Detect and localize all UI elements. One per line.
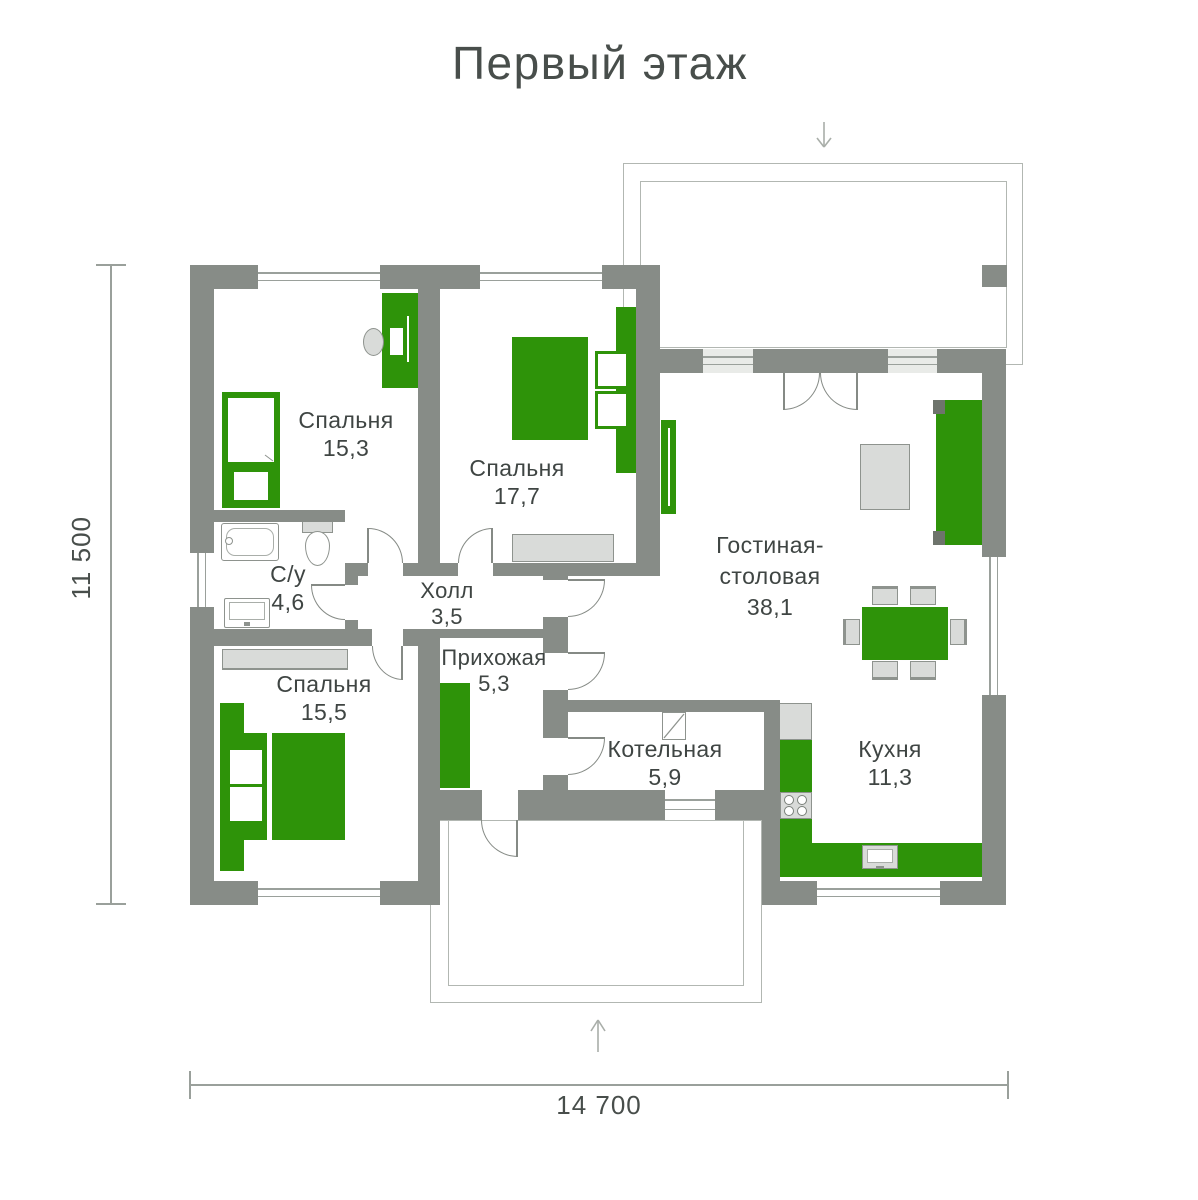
room-name: Холл — [420, 578, 473, 604]
room-name: Спальня — [469, 454, 564, 482]
room-label-bathroom: С/у 4,6 — [270, 560, 306, 616]
dimension-width: 14 700 — [556, 1090, 642, 1121]
room-label-living-dining: Гостиная-столовая 38,1 — [683, 530, 858, 623]
room-name: Кухня — [858, 735, 922, 763]
room-area: 11,3 — [858, 763, 922, 791]
room-name: Спальня — [298, 406, 393, 434]
room-label-bedroom-1: Спальня 15,3 — [298, 406, 393, 462]
room-area: 5,9 — [608, 763, 723, 791]
room-area: 15,5 — [276, 698, 371, 726]
room-area: 3,5 — [420, 604, 473, 630]
room-area: 5,3 — [441, 671, 546, 697]
room-label-boiler-room: Котельная 5,9 — [608, 735, 723, 791]
page-title: Первый этаж — [452, 36, 748, 90]
floor-plan: Первый этаж — [0, 0, 1198, 1200]
entrance-arrow-top — [817, 122, 831, 147]
room-label-bedroom-3: Спальня 15,5 — [276, 670, 371, 726]
room-area: 17,7 — [469, 482, 564, 510]
room-label-bedroom-2: Спальня 17,7 — [469, 454, 564, 510]
room-name: Прихожая — [441, 645, 546, 671]
dimension-height: 11 500 — [66, 516, 97, 600]
room-name: С/у — [270, 560, 306, 588]
room-name: Спальня — [276, 670, 371, 698]
mattress-fold — [265, 455, 273, 461]
room-area: 15,3 — [298, 434, 393, 462]
room-name: Котельная — [608, 735, 723, 763]
room-area: 4,6 — [270, 588, 306, 616]
room-label-kitchen: Кухня 11,3 — [858, 735, 922, 791]
room-label-entry: Прихожая 5,3 — [441, 645, 546, 697]
room-label-hall: Холл 3,5 — [420, 578, 473, 630]
room-area: 38,1 — [683, 592, 858, 623]
entrance-arrow-bottom — [591, 1020, 605, 1052]
room-name: Гостиная-столовая — [683, 530, 858, 592]
